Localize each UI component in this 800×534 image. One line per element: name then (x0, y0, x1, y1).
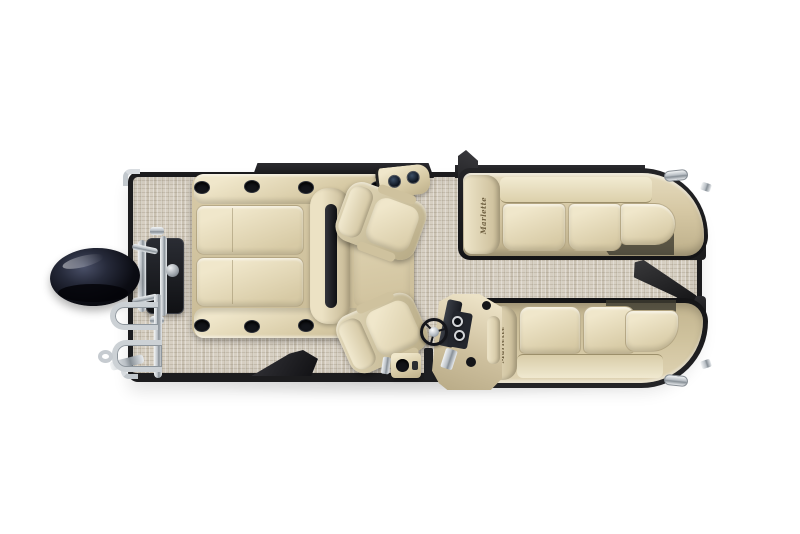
helm-gauge (454, 330, 465, 341)
lounge-arm: Marlette (464, 175, 500, 254)
armrest-cupholder (194, 319, 210, 332)
steering-wheel (420, 318, 448, 346)
wheel-hub (429, 327, 439, 337)
armrest-cupholder (244, 180, 260, 193)
boarding-ladder-rung (110, 302, 158, 330)
boarding-ladder-hook (98, 350, 113, 363)
cushion-seam (232, 260, 233, 304)
backrest-stripe (325, 204, 337, 308)
bench-cushion (196, 257, 304, 307)
armrest-cupholder (244, 320, 260, 333)
lounge-cushion (568, 203, 622, 251)
lounge-backrest-band (500, 177, 652, 203)
bow-trim-hook (700, 182, 712, 193)
helm-dark-pillar (424, 348, 433, 380)
helm-gauge (452, 316, 463, 327)
helm-side-box-hatch (396, 359, 409, 372)
bow-cleat (663, 169, 688, 182)
lounge-cushion (519, 306, 581, 354)
armrest-cupholder (298, 319, 314, 332)
stern-corner-trim (123, 169, 140, 186)
motor-mount-knob (166, 264, 179, 277)
pontoon-floorplan-image: Marlette Marlette (0, 0, 800, 534)
armrest-cupholder (194, 181, 210, 194)
helm-knob (482, 301, 491, 310)
lounge-corner-cushion (620, 203, 676, 245)
helm-grab-pad (487, 316, 500, 364)
cup-holder (406, 170, 420, 184)
helm-knob (466, 357, 476, 367)
brand-logo: Marlette (479, 197, 488, 234)
motor-lower-cowl (58, 284, 128, 302)
helm-side-box-latch (412, 361, 418, 370)
lounge-cushion (502, 203, 566, 251)
lounge-backrest-band (517, 354, 663, 378)
boarding-ladder-rung (112, 340, 162, 372)
motor-mount-nub (150, 227, 164, 235)
armrest-cupholder (298, 181, 314, 194)
cushion-seam (232, 208, 233, 252)
bench-cushion (196, 205, 304, 255)
bow-trim-hook (700, 359, 712, 370)
